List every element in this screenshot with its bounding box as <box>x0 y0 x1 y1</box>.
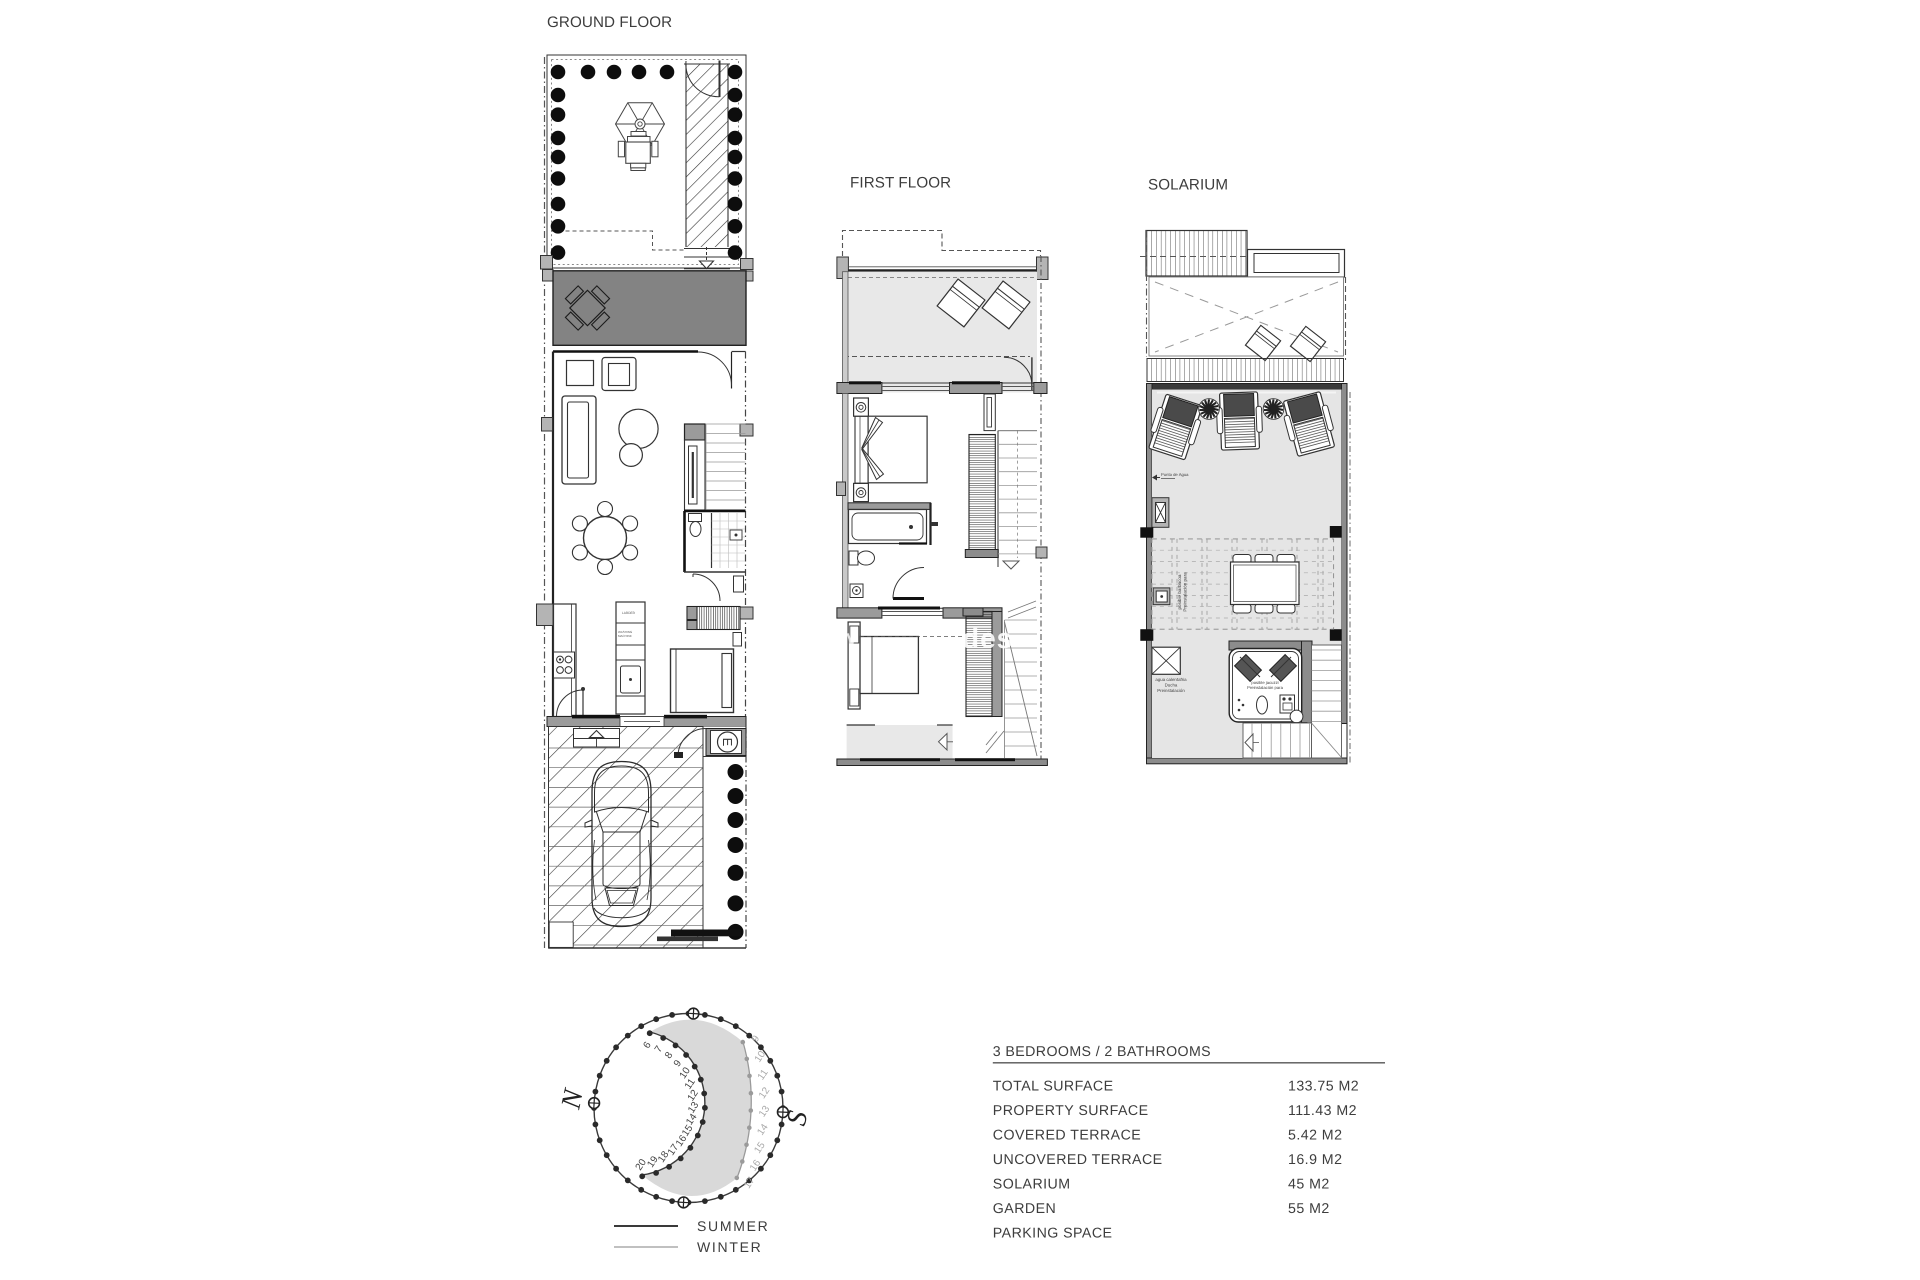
svg-text:E: E <box>720 738 735 747</box>
svg-text:COVERED TERRACE: COVERED TERRACE <box>993 1128 1141 1144</box>
svg-text:N: N <box>555 1086 590 1113</box>
svg-text:des: des <box>962 623 1013 654</box>
svg-text:16.9 M2: 16.9 M2 <box>1288 1152 1342 1168</box>
svg-text:Preinstalación: Preinstalación <box>1157 688 1185 693</box>
svg-text:TOTAL SURFACE: TOTAL SURFACE <box>993 1079 1114 1095</box>
svg-text:GARDEN: GARDEN <box>993 1201 1056 1217</box>
svg-text:13: 13 <box>757 1104 773 1120</box>
svg-text:LARDER: LARDER <box>622 611 636 615</box>
svg-text:133.75 M2: 133.75 M2 <box>1288 1079 1359 1095</box>
svg-text:17: 17 <box>742 1175 758 1191</box>
svg-text:14: 14 <box>755 1122 771 1138</box>
svg-text:55 M2: 55 M2 <box>1288 1201 1330 1217</box>
svg-text:FIRST FLOOR: FIRST FLOOR <box>850 175 951 192</box>
svg-text:w: w <box>838 625 857 650</box>
svg-text:Punto de Agua: Punto de Agua <box>1161 472 1189 477</box>
svg-text:posible barbacoa: posible barbacoa <box>1177 574 1182 609</box>
svg-text:9: 9 <box>750 1033 762 1044</box>
svg-text:WINTER: WINTER <box>697 1239 762 1255</box>
svg-text:MACHINE: MACHINE <box>618 634 632 638</box>
svg-text:12: 12 <box>757 1085 773 1101</box>
svg-text:111.43 M2: 111.43 M2 <box>1288 1103 1357 1119</box>
svg-text:20: 20 <box>634 1157 650 1173</box>
svg-text:PARKING SPACE: PARKING SPACE <box>993 1226 1113 1242</box>
svg-text:5.42 M2: 5.42 M2 <box>1288 1128 1342 1144</box>
svg-text:10: 10 <box>753 1049 769 1065</box>
svg-text:15: 15 <box>752 1140 768 1156</box>
svg-text:SOLARIUM: SOLARIUM <box>1148 177 1228 194</box>
svg-text:Preinstalación para: Preinstalación para <box>1247 685 1284 690</box>
svg-text:45 M2: 45 M2 <box>1288 1177 1330 1193</box>
svg-text:Preinstalación para: Preinstalación para <box>1183 572 1188 612</box>
svg-text:UNCOVERED TERRACE: UNCOVERED TERRACE <box>993 1152 1163 1168</box>
svg-text:11: 11 <box>756 1067 771 1082</box>
svg-text:GROUND FLOOR: GROUND FLOOR <box>547 14 672 31</box>
svg-text:SOLARIUM: SOLARIUM <box>993 1177 1071 1193</box>
svg-text:Ducha: Ducha <box>1165 683 1178 688</box>
svg-text:agua calentafria: agua calentafria <box>1155 677 1187 682</box>
svg-text:S: S <box>781 1108 814 1128</box>
svg-text:3 BEDROOMS / 2 BATHROOMS: 3 BEDROOMS / 2 BATHROOMS <box>993 1044 1211 1060</box>
svg-text:PROPERTY SURFACE: PROPERTY SURFACE <box>993 1103 1149 1119</box>
svg-text:13: 13 <box>686 1100 702 1116</box>
svg-text:SUMMER: SUMMER <box>697 1218 769 1234</box>
